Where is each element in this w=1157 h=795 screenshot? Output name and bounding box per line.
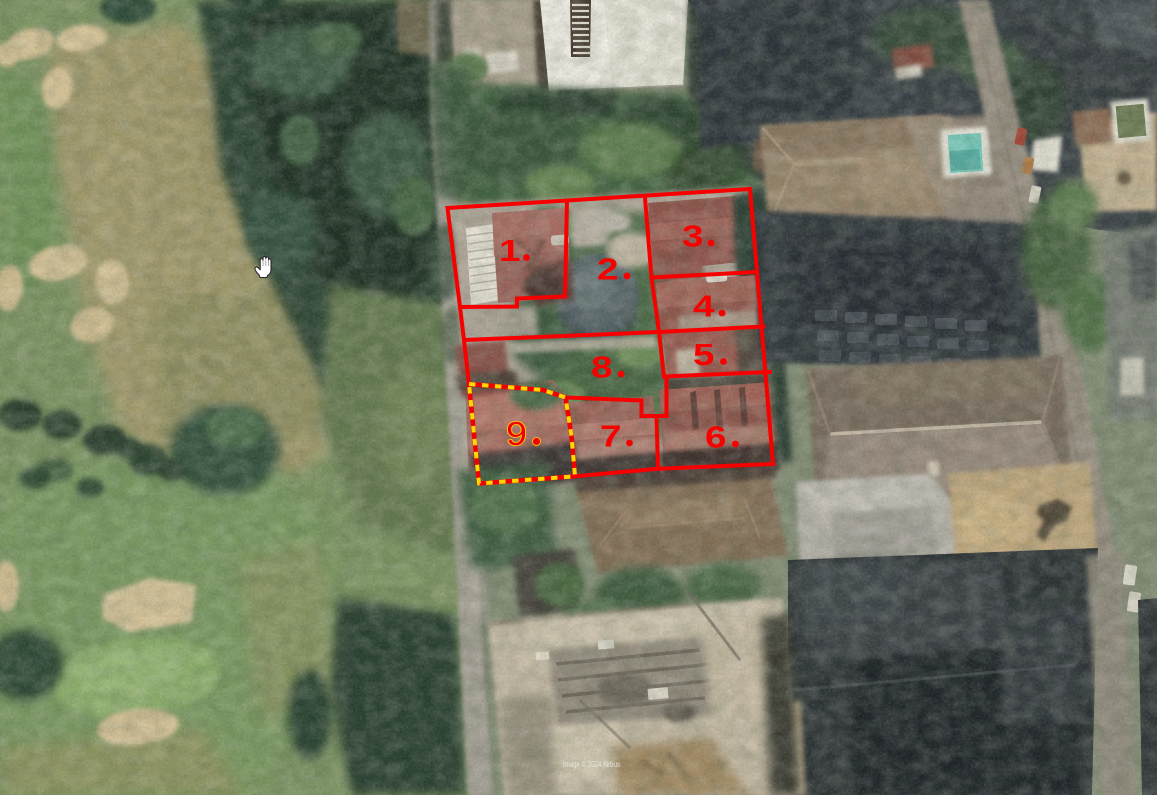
- svg-text:5: 5: [693, 337, 715, 372]
- svg-text:Image © 2024 Airbus: Image © 2024 Airbus: [563, 760, 620, 769]
- svg-text:4: 4: [693, 289, 715, 324]
- svg-text:8: 8: [591, 350, 613, 385]
- svg-text:2: 2: [597, 252, 619, 287]
- svg-text:6: 6: [705, 420, 727, 455]
- svg-text:9: 9: [506, 415, 527, 452]
- svg-text:3: 3: [682, 219, 704, 254]
- svg-text:1: 1: [499, 233, 521, 268]
- svg-text:7: 7: [600, 419, 622, 454]
